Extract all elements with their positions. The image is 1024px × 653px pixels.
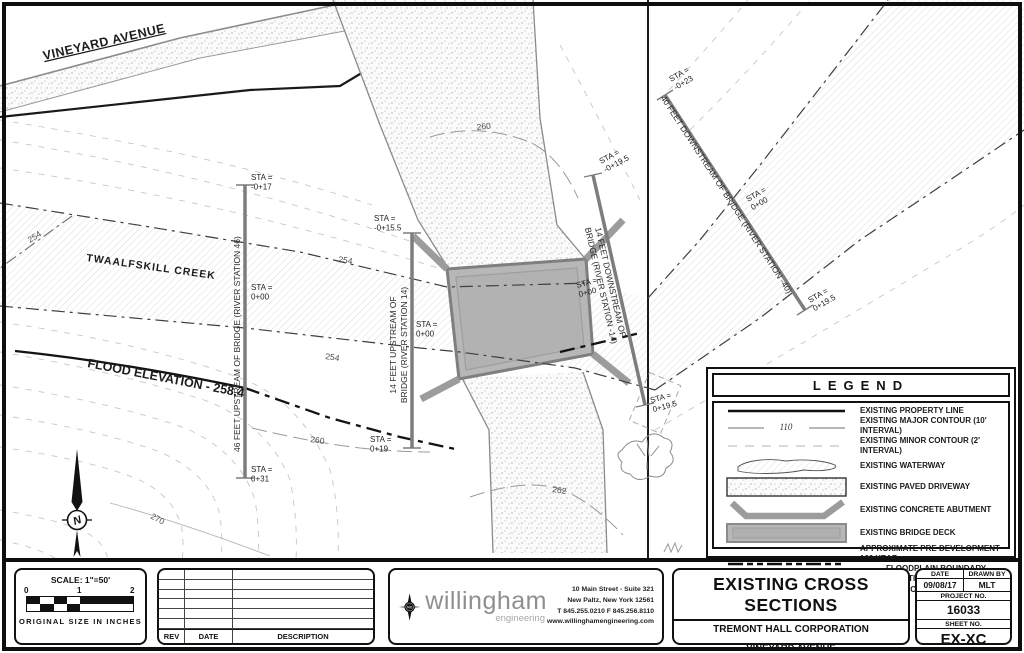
svg-text:270: 270 — [149, 511, 166, 527]
legend-item-bridge-deck: EXISTING BRIDGE DECK — [720, 522, 1002, 544]
svg-text:-0+17: -0+17 — [251, 183, 272, 192]
paved-driveway-symbol — [720, 476, 852, 498]
legend-item-property-line: EXISTING PROPERTY LINE — [720, 406, 1002, 416]
legend-item-major-contour: 110 EXISTING MAJOR CONTOUR (10' INTERVAL… — [720, 416, 1002, 436]
waterway-symbol — [720, 456, 852, 476]
concrete-abutment-symbol — [720, 498, 852, 522]
svg-text:262: 262 — [552, 484, 568, 496]
legend-item-minor-contour: EXISTING MINOR CONTOUR (2' INTERVAL) — [720, 436, 1002, 456]
scale-caption: ORIGINAL SIZE IN INCHES — [16, 617, 145, 626]
title-rule — [674, 619, 908, 621]
grass-icon — [664, 543, 682, 552]
svg-text:254: 254 — [325, 351, 341, 363]
scale-box: SCALE: 1"=50' 0 1 2 ORIGINAL SIZE IN INC… — [14, 568, 147, 645]
legend-title: LEGEND — [712, 373, 1010, 397]
project-no-value: 16033 — [917, 601, 1010, 620]
svg-text:STA =: STA = — [251, 173, 273, 182]
firm-address: 10 Main Street - Suite 321 New Paltz, Ne… — [547, 585, 654, 627]
major-contour-symbol: 110 — [720, 420, 852, 432]
date-value: 09/08/17 — [917, 579, 964, 591]
legend-item-waterway: EXISTING WATERWAY — [720, 456, 1002, 476]
tree-icon — [618, 434, 673, 480]
svg-text:STA =: STA = — [251, 283, 273, 292]
flood-elevation-label: FLOOD ELEVATION - 258.4 — [86, 356, 245, 400]
svg-text:14 FEET UPSTREAM OF: 14 FEET UPSTREAM OF — [388, 296, 398, 393]
svg-text:0+00: 0+00 — [251, 293, 270, 302]
firm-name-block: willingham engineering — [421, 589, 547, 624]
description-header: DESCRIPTION — [233, 629, 373, 643]
scale-ticks: 0 1 2 — [26, 586, 136, 595]
svg-text:0+19: 0+19 — [370, 445, 389, 454]
sheet-no-header: SHEET NO. — [917, 620, 1010, 629]
legend: LEGEND EXISTING PROPERTY LINE 110 EXISTI… — [706, 367, 1016, 558]
sheet-no-value: EX-XC — [917, 629, 1010, 650]
title-block: EXISTING CROSS SECTIONS TREMONT HALL COR… — [672, 568, 910, 645]
svg-text:0+31: 0+31 — [251, 475, 270, 484]
legend-item-paved-driveway: EXISTING PAVED DRIVEWAY — [720, 476, 1002, 498]
info-block: DATE DRAWN BY 09/08/17 MLT PROJECT NO. 1… — [915, 568, 1012, 645]
scale-text: SCALE: 1"=50' — [16, 575, 145, 585]
svg-text:0+00: 0+00 — [416, 330, 435, 339]
scale-bar — [26, 596, 134, 612]
client-name: TREMONT HALL CORPORATION — [674, 624, 908, 635]
svg-text:-0+15.5: -0+15.5 — [374, 224, 402, 233]
firm-name: willingham — [425, 589, 547, 614]
drawnby-value: MLT — [964, 579, 1010, 591]
rev-header: REV — [159, 629, 185, 643]
svg-text:260: 260 — [310, 434, 326, 446]
svg-text:110: 110 — [779, 422, 792, 432]
legend-item-concrete-abutment: EXISTING CONCRETE ABUTMENT — [720, 498, 1002, 522]
svg-text:STA =: STA = — [370, 435, 392, 444]
revision-table: REV DATE DESCRIPTION — [157, 568, 375, 645]
svg-text:260: 260 — [476, 121, 491, 132]
rev-cell — [159, 570, 185, 580]
svg-text:BRIDGE (RIVER STATION 14): BRIDGE (RIVER STATION 14) — [399, 287, 409, 404]
svg-text:STA =: STA = — [251, 465, 273, 474]
svg-text:254: 254 — [338, 254, 354, 266]
firm-logo: we — [398, 574, 421, 640]
sheet-title: EXISTING CROSS SECTIONS — [674, 574, 908, 616]
titleblock-divider — [6, 558, 1018, 562]
svg-text:STA =: STA = — [374, 214, 396, 223]
property-line-symbol — [720, 407, 852, 415]
date-header: DATE — [185, 629, 233, 643]
project-location-street: VINEYARD AVENUE — [674, 643, 908, 653]
minor-contour-symbol — [720, 442, 852, 450]
bridge-deck-symbol — [720, 522, 852, 544]
date-drawnby-headers: DATE DRAWN BY — [917, 570, 1010, 579]
project-no-header: PROJECT NO. — [917, 592, 1010, 601]
date-drawnby-values: 09/08/17 MLT — [917, 579, 1010, 592]
svg-text:46 FEET UPSTREAM OF BRIDGE (RI: 46 FEET UPSTREAM OF BRIDGE (RIVER STATIO… — [232, 236, 242, 452]
drawing-sheet: VINEYARD AVENUE TWAALFSKILL CREEK FLOOD … — [0, 0, 1024, 653]
north-arrow: N — [62, 449, 92, 557]
firm-block: we willingham engineering 10 Main Street… — [388, 568, 664, 645]
logo-text: we — [407, 605, 412, 610]
svg-text:STA =: STA = — [416, 320, 438, 329]
